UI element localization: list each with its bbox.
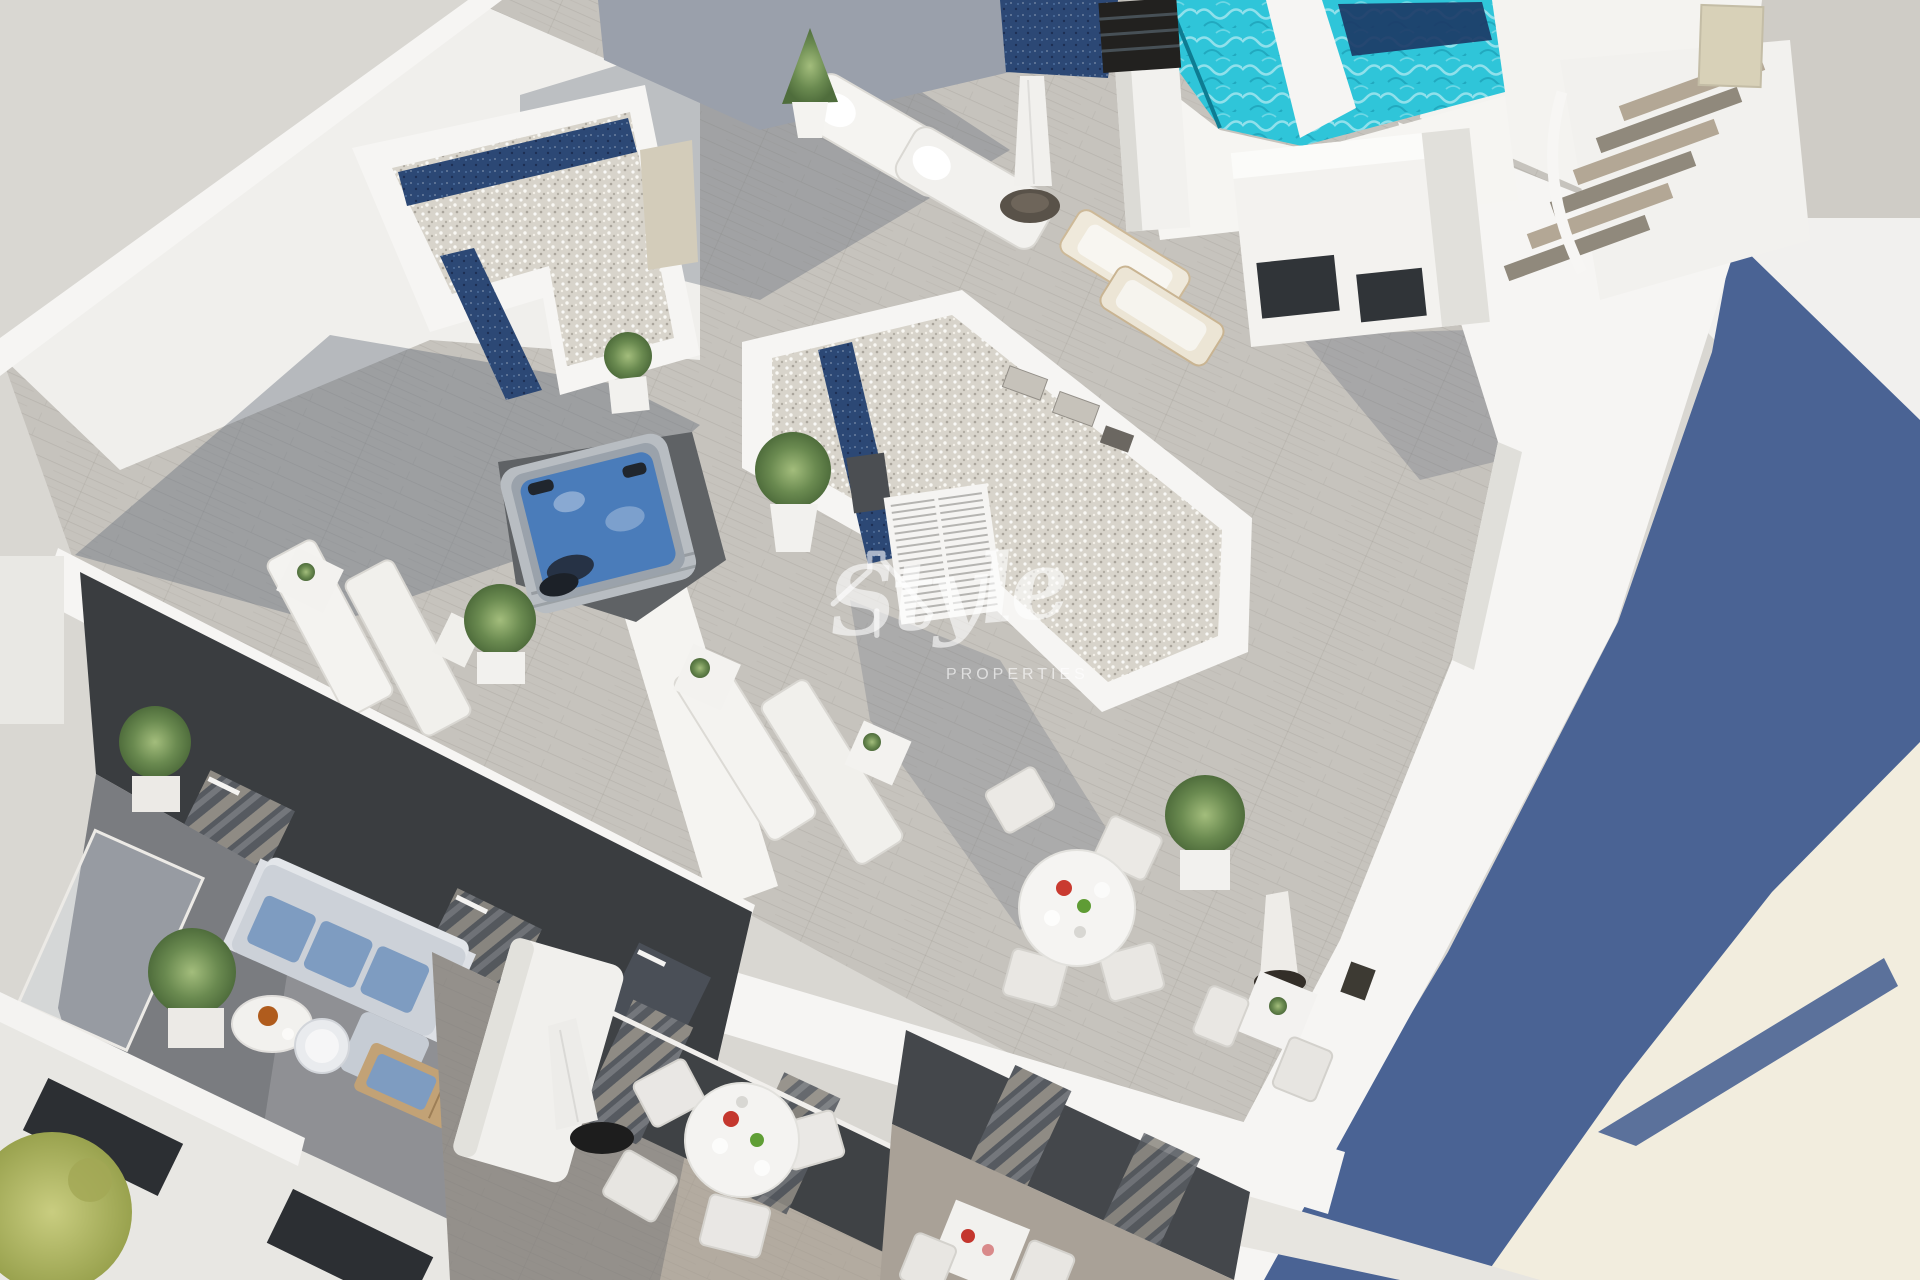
chair-cushion [305,1029,339,1063]
plant-pot [770,504,818,552]
tree-foliage-detail [68,1158,112,1202]
red-food-item [723,1111,739,1127]
plant-pot [608,376,649,414]
potted-bush [148,928,236,1016]
pink-food-item [982,1244,994,1256]
screenshot-root: Style PROPERTIES [0,0,1920,1280]
cube-window [1356,268,1427,323]
roof-cube-room [1231,128,1490,347]
planter-box [477,652,525,684]
table-plant [1269,997,1287,1015]
potted-plant [604,332,652,380]
red-food-item [1056,880,1072,896]
cup [282,1028,294,1040]
planter-box [132,776,180,812]
planter-box [1180,850,1230,890]
left-edge-planter-wall [0,556,64,724]
plate [1044,910,1060,926]
table-plant [297,563,315,581]
rooftop-render-scene [0,0,1920,1280]
potted-bush [119,706,191,778]
potted-plant [755,432,831,508]
planter-box [168,1008,224,1048]
plate [1094,882,1110,898]
potted-bush [1165,775,1245,855]
potted-bush [464,584,536,656]
cube-window [1256,255,1339,319]
table-plant [863,733,881,751]
beige-recess-wall [640,140,698,270]
plant-pot [792,102,828,138]
red-food-item [961,1229,975,1243]
louver-shutter-door [884,483,1005,624]
roof-access-door [1699,5,1764,87]
umbrella-base-top [1011,193,1049,213]
chimney-louver-cap [1098,0,1181,73]
bowl-orange [258,1006,278,1026]
plate [754,1160,770,1176]
plate [712,1138,728,1154]
round-dining-table [1019,850,1135,966]
table-plant [690,658,710,678]
plate [1074,926,1086,938]
green-food-item [1077,899,1091,913]
plate [736,1096,748,1108]
umbrella-base [570,1122,634,1154]
green-food-item [750,1133,764,1147]
